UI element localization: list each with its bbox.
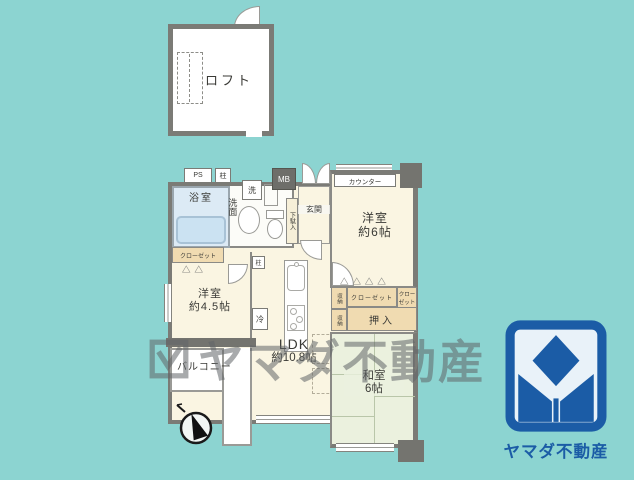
western45-window [164,284,172,322]
storage-top: 収納 [331,287,347,309]
closet-small-line2: ゼット [399,298,416,306]
western45-label-line1: 洋室 [198,288,222,301]
yamada-logo-text: ヤマダ不動産 [494,438,618,462]
washitsu-window [336,443,394,452]
washing-machine-box: 洗 [242,180,262,200]
western45-label: 洋室 約4.5帖 [168,288,252,313]
washroom-label: 洗面 [227,198,237,216]
kitchen-faucet-icon [294,262,299,267]
entrance-label: 玄関 [298,205,330,214]
closet-wide-label: クローゼット [351,293,393,302]
pillar-box-2: 柱 [252,256,265,269]
folding-door-icon-row: △△△△ [340,275,390,286]
pillar-label-2: 柱 [255,258,261,267]
bathtub-icon [176,216,226,244]
western45-label-line2: 約4.5帖 [189,301,231,314]
loft-wall-opening [246,130,262,137]
fridge-label: 冷 [256,314,264,325]
pipe-space-box: PS [184,168,212,183]
entrance-door-arc-right [316,163,330,184]
western6-label: 洋室 約6帖 [340,212,410,240]
oshiire-label: 押入 [369,312,395,327]
pipe-space-label: PS [193,172,202,179]
meter-box: MB [272,168,296,190]
washing-machine-label: 洗 [248,185,256,196]
meter-box-label: MB [278,175,290,184]
north-arrow-icon [170,398,218,448]
toilet-bowl-icon [267,219,283,239]
entrance-door-arc-left [302,163,316,184]
shoe-cabinet-label: 下駄入 [288,212,297,230]
watermark-logo-icon [148,338,190,380]
loft-ladder-rail [189,54,190,102]
storage-bottom-label: 収納 [335,315,343,326]
pillar-box-1: 柱 [215,168,231,183]
closet-wide: クローゼット [347,287,397,307]
western6-label-line1: 洋室 [362,212,388,226]
floor-plan-image: ロフト 浴室 PS 柱 洗 洗面 MB 下駄入 玄関 カウンター 洋室 約6帖 … [0,0,634,480]
sink-icon [238,206,260,234]
bathroom-label: 浴室 [174,193,228,205]
closet-45-label: クローゼット [180,251,216,260]
closet-small-line1: クロー [399,290,416,298]
closet-small: クロー ゼット [397,287,417,309]
loft-label: ロフト [192,74,266,89]
tatami-line-h3 [332,416,374,417]
folding-door-icon-45: △△ [182,263,207,274]
pillar-block-bottomright [398,440,424,462]
watermark: ヤマダ不動産 [148,330,486,388]
closet-45: クローゼット [172,247,224,263]
watermark-text: ヤマダ不動産 [198,326,486,392]
yamada-logo [505,320,607,434]
toilet-tank-icon [266,210,284,219]
western6-label-line2: 約6帖 [358,226,392,240]
pillar-label-1: 柱 [220,171,227,181]
counter: カウンター [334,174,396,187]
stove-burner-2 [296,316,303,323]
stove-burner-1 [290,308,297,315]
entrance [298,186,330,244]
storage-top-label: 収納 [335,293,343,304]
ldk-window [256,415,336,424]
pillar-block-topright [400,163,422,188]
shoe-cabinet: 下駄入 [286,198,298,244]
kitchen-sink-icon [287,265,305,291]
counter-label: カウンター [349,176,382,186]
